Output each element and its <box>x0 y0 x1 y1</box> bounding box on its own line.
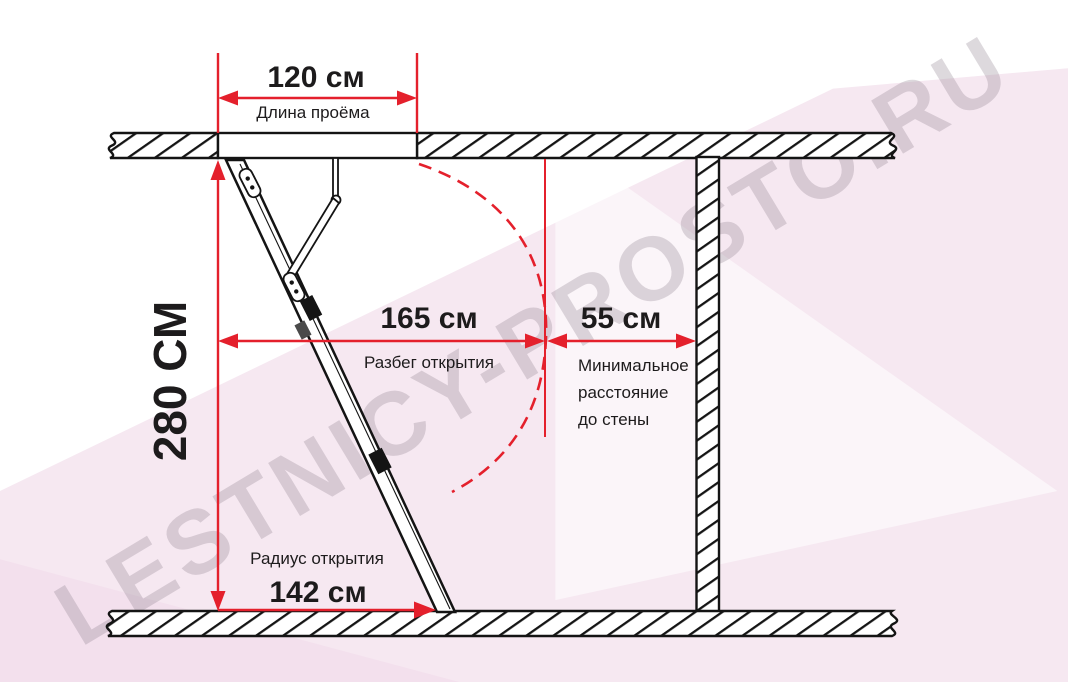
dim-value-room-height: 280 СМ <box>143 301 197 461</box>
dim-label-wall-distance-line1: Минимальное <box>578 352 689 379</box>
hatch-opening <box>218 133 417 158</box>
ladder-rail-inner-line <box>240 164 450 609</box>
ladder-rail <box>226 160 455 612</box>
ceiling-section-left <box>109 133 218 158</box>
ladder <box>226 158 455 612</box>
floor-section <box>107 611 897 636</box>
attic-ladder-dimension-diagram: LESTNICY-PROSTO.RU <box>0 0 1068 682</box>
ceiling-section-right <box>417 133 896 158</box>
dim-label-opening-length: Длина проёма <box>256 103 369 123</box>
wall-section <box>697 157 720 612</box>
dimension-room-height <box>211 160 226 611</box>
dim-value-opening-length: 120 см <box>267 61 364 95</box>
hatch-support-arm <box>285 158 341 282</box>
dim-value-wall-distance: 55 см <box>581 302 662 336</box>
dim-label-opening-radius: Радиус открытия <box>250 549 384 569</box>
dim-label-opening-run: Разбег открытия <box>364 353 494 373</box>
dim-label-wall-distance-line3: до стены <box>578 406 689 433</box>
dim-label-wall-distance: Минимальное расстояние до стены <box>578 352 689 433</box>
dim-label-wall-distance-line2: расстояние <box>578 379 689 406</box>
dim-value-opening-radius: 142 см <box>269 576 366 610</box>
dim-value-opening-run: 165 см <box>380 302 477 336</box>
